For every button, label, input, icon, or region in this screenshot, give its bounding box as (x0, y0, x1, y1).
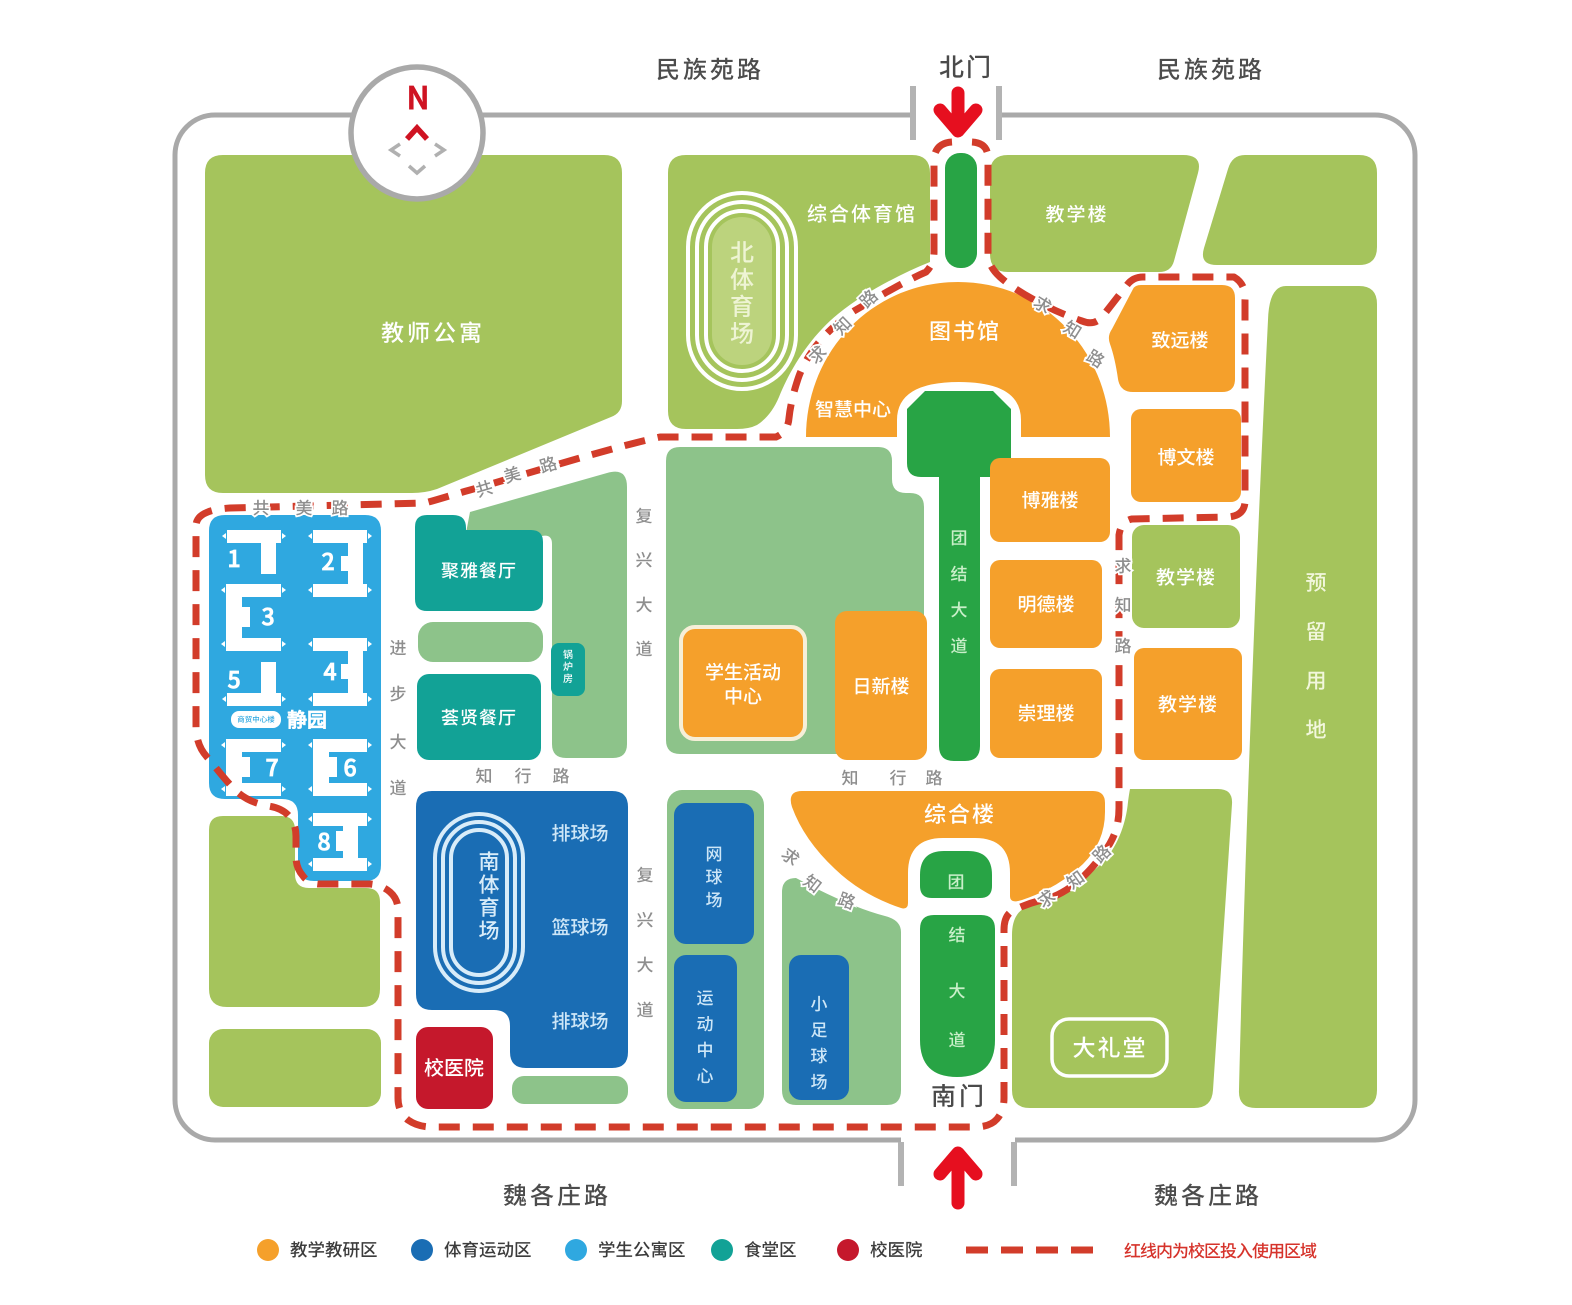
svg-text:用: 用 (1306, 665, 1327, 695)
svg-text:3: 3 (261, 598, 274, 632)
svg-text:智慧中心: 智慧中心 (815, 395, 891, 422)
svg-text:校医院: 校医院 (424, 1052, 484, 1081)
svg-text:团: 团 (948, 868, 965, 893)
svg-text:地: 地 (1306, 714, 1327, 744)
svg-text:红线内为校区投入使用区域: 红线内为校区投入使用区域 (1124, 1237, 1317, 1262)
svg-text:动: 动 (697, 1010, 714, 1035)
svg-text:道: 道 (390, 774, 407, 799)
svg-text:魏各庄路: 魏各庄路 (1154, 1176, 1262, 1211)
svg-text:大礼堂: 大礼堂 (1073, 1029, 1148, 1063)
svg-text:大: 大 (949, 977, 966, 1002)
svg-text:教学教研区: 教学教研区 (290, 1237, 378, 1262)
svg-text:6: 6 (343, 749, 356, 783)
svg-text:排球场: 排球场 (551, 1007, 608, 1034)
svg-text:网: 网 (706, 840, 723, 865)
svg-text:路: 路 (926, 764, 943, 789)
svg-text:知: 知 (842, 764, 859, 789)
svg-text:民族苑路: 民族苑路 (1157, 50, 1265, 85)
svg-text:崇理楼: 崇理楼 (1017, 699, 1074, 726)
svg-text:道: 道 (949, 1026, 966, 1051)
svg-text:大: 大 (390, 728, 407, 753)
svg-text:致远楼: 致远楼 (1151, 326, 1208, 353)
svg-text:步: 步 (390, 680, 407, 705)
svg-text:场: 场 (730, 314, 754, 349)
svg-text:结: 结 (949, 921, 966, 946)
svg-text:求: 求 (1115, 552, 1132, 577)
svg-text:复: 复 (637, 861, 654, 886)
svg-text:教学楼: 教学楼 (1158, 690, 1218, 717)
svg-text:兴: 兴 (636, 546, 653, 571)
svg-text:中心: 中心 (724, 682, 762, 709)
svg-text:共: 共 (253, 494, 270, 519)
svg-text:教学楼: 教学楼 (1156, 563, 1216, 590)
svg-text:日新楼: 日新楼 (852, 672, 909, 699)
svg-text:民族苑路: 民族苑路 (656, 50, 764, 85)
svg-text:体育运动区: 体育运动区 (444, 1237, 532, 1262)
svg-text:1: 1 (227, 540, 240, 574)
svg-text:5: 5 (227, 661, 240, 695)
svg-text:小: 小 (811, 990, 828, 1015)
svg-text:行: 行 (515, 762, 532, 787)
svg-text:综合楼: 综合楼 (924, 797, 996, 829)
svg-text:预: 预 (1306, 567, 1327, 597)
svg-text:南门: 南门 (931, 1077, 987, 1113)
svg-text:4: 4 (323, 653, 336, 687)
svg-text:复: 复 (636, 502, 653, 527)
svg-text:球: 球 (706, 863, 723, 888)
svg-text:中: 中 (697, 1036, 714, 1061)
svg-text:知: 知 (1115, 591, 1132, 616)
svg-text:商贸中心楼: 商贸中心楼 (237, 714, 275, 725)
svg-text:综合体育馆: 综合体育馆 (807, 198, 917, 227)
svg-text:留: 留 (1306, 616, 1327, 646)
svg-text:校医院: 校医院 (870, 1237, 923, 1262)
svg-text:路: 路 (332, 494, 349, 519)
svg-text:足: 足 (811, 1016, 828, 1041)
svg-text:美: 美 (296, 494, 313, 519)
svg-text:教师公寓: 教师公寓 (381, 314, 485, 348)
svg-text:聚雅餐厅: 聚雅餐厅 (441, 557, 517, 583)
svg-text:球: 球 (811, 1042, 828, 1067)
svg-text:大: 大 (951, 596, 968, 621)
svg-text:场: 场 (811, 1068, 828, 1093)
svg-text:兴: 兴 (637, 906, 654, 931)
svg-text:行: 行 (890, 764, 907, 789)
svg-text:学生活动: 学生活动 (705, 658, 781, 685)
svg-text:路: 路 (1115, 632, 1132, 657)
svg-text:房: 房 (563, 670, 573, 685)
svg-text:排球场: 排球场 (551, 819, 608, 846)
svg-text:7: 7 (265, 749, 278, 783)
svg-text:道: 道 (637, 996, 654, 1021)
svg-text:道: 道 (636, 635, 653, 660)
svg-text:2: 2 (321, 543, 334, 577)
svg-text:N: N (407, 73, 430, 118)
svg-text:进: 进 (390, 634, 407, 659)
svg-text:大: 大 (636, 591, 653, 616)
svg-text:博文楼: 博文楼 (1157, 443, 1214, 470)
svg-text:博雅楼: 博雅楼 (1021, 486, 1078, 513)
svg-text:明德楼: 明德楼 (1017, 590, 1074, 617)
svg-text:食堂区: 食堂区 (744, 1237, 797, 1262)
svg-text:篮球场: 篮球场 (551, 913, 608, 940)
svg-text:大: 大 (637, 951, 654, 976)
svg-text:静园: 静园 (287, 704, 327, 733)
svg-text:道: 道 (951, 632, 968, 657)
svg-text:北门: 北门 (939, 48, 993, 84)
svg-text:知: 知 (476, 762, 493, 787)
svg-text:图书馆: 图书馆 (929, 314, 1001, 346)
svg-text:教学楼: 教学楼 (1045, 200, 1108, 227)
svg-text:结: 结 (951, 560, 968, 585)
svg-text:8: 8 (317, 823, 330, 857)
svg-text:心: 心 (697, 1062, 714, 1087)
svg-text:魏各庄路: 魏各庄路 (503, 1176, 611, 1211)
svg-text:场: 场 (479, 915, 500, 945)
svg-text:场: 场 (706, 886, 723, 911)
svg-text:荟贤餐厅: 荟贤餐厅 (441, 704, 517, 730)
svg-text:学生公寓区: 学生公寓区 (598, 1237, 686, 1262)
svg-text:路: 路 (553, 762, 570, 787)
svg-text:运: 运 (697, 984, 714, 1009)
svg-text:团: 团 (951, 524, 968, 549)
